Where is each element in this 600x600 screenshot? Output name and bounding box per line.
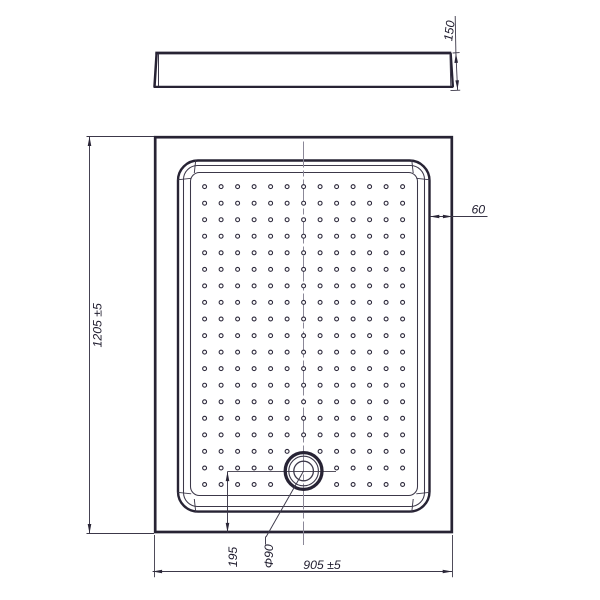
svg-text:195: 195	[226, 547, 240, 568]
svg-text:150: 150	[441, 20, 457, 42]
svg-text:1205 ±5: 1205 ±5	[91, 303, 105, 348]
svg-text:905 ±5: 905 ±5	[303, 558, 341, 572]
svg-text:Φ90: Φ90	[262, 544, 276, 568]
svg-text:60: 60	[471, 202, 485, 216]
